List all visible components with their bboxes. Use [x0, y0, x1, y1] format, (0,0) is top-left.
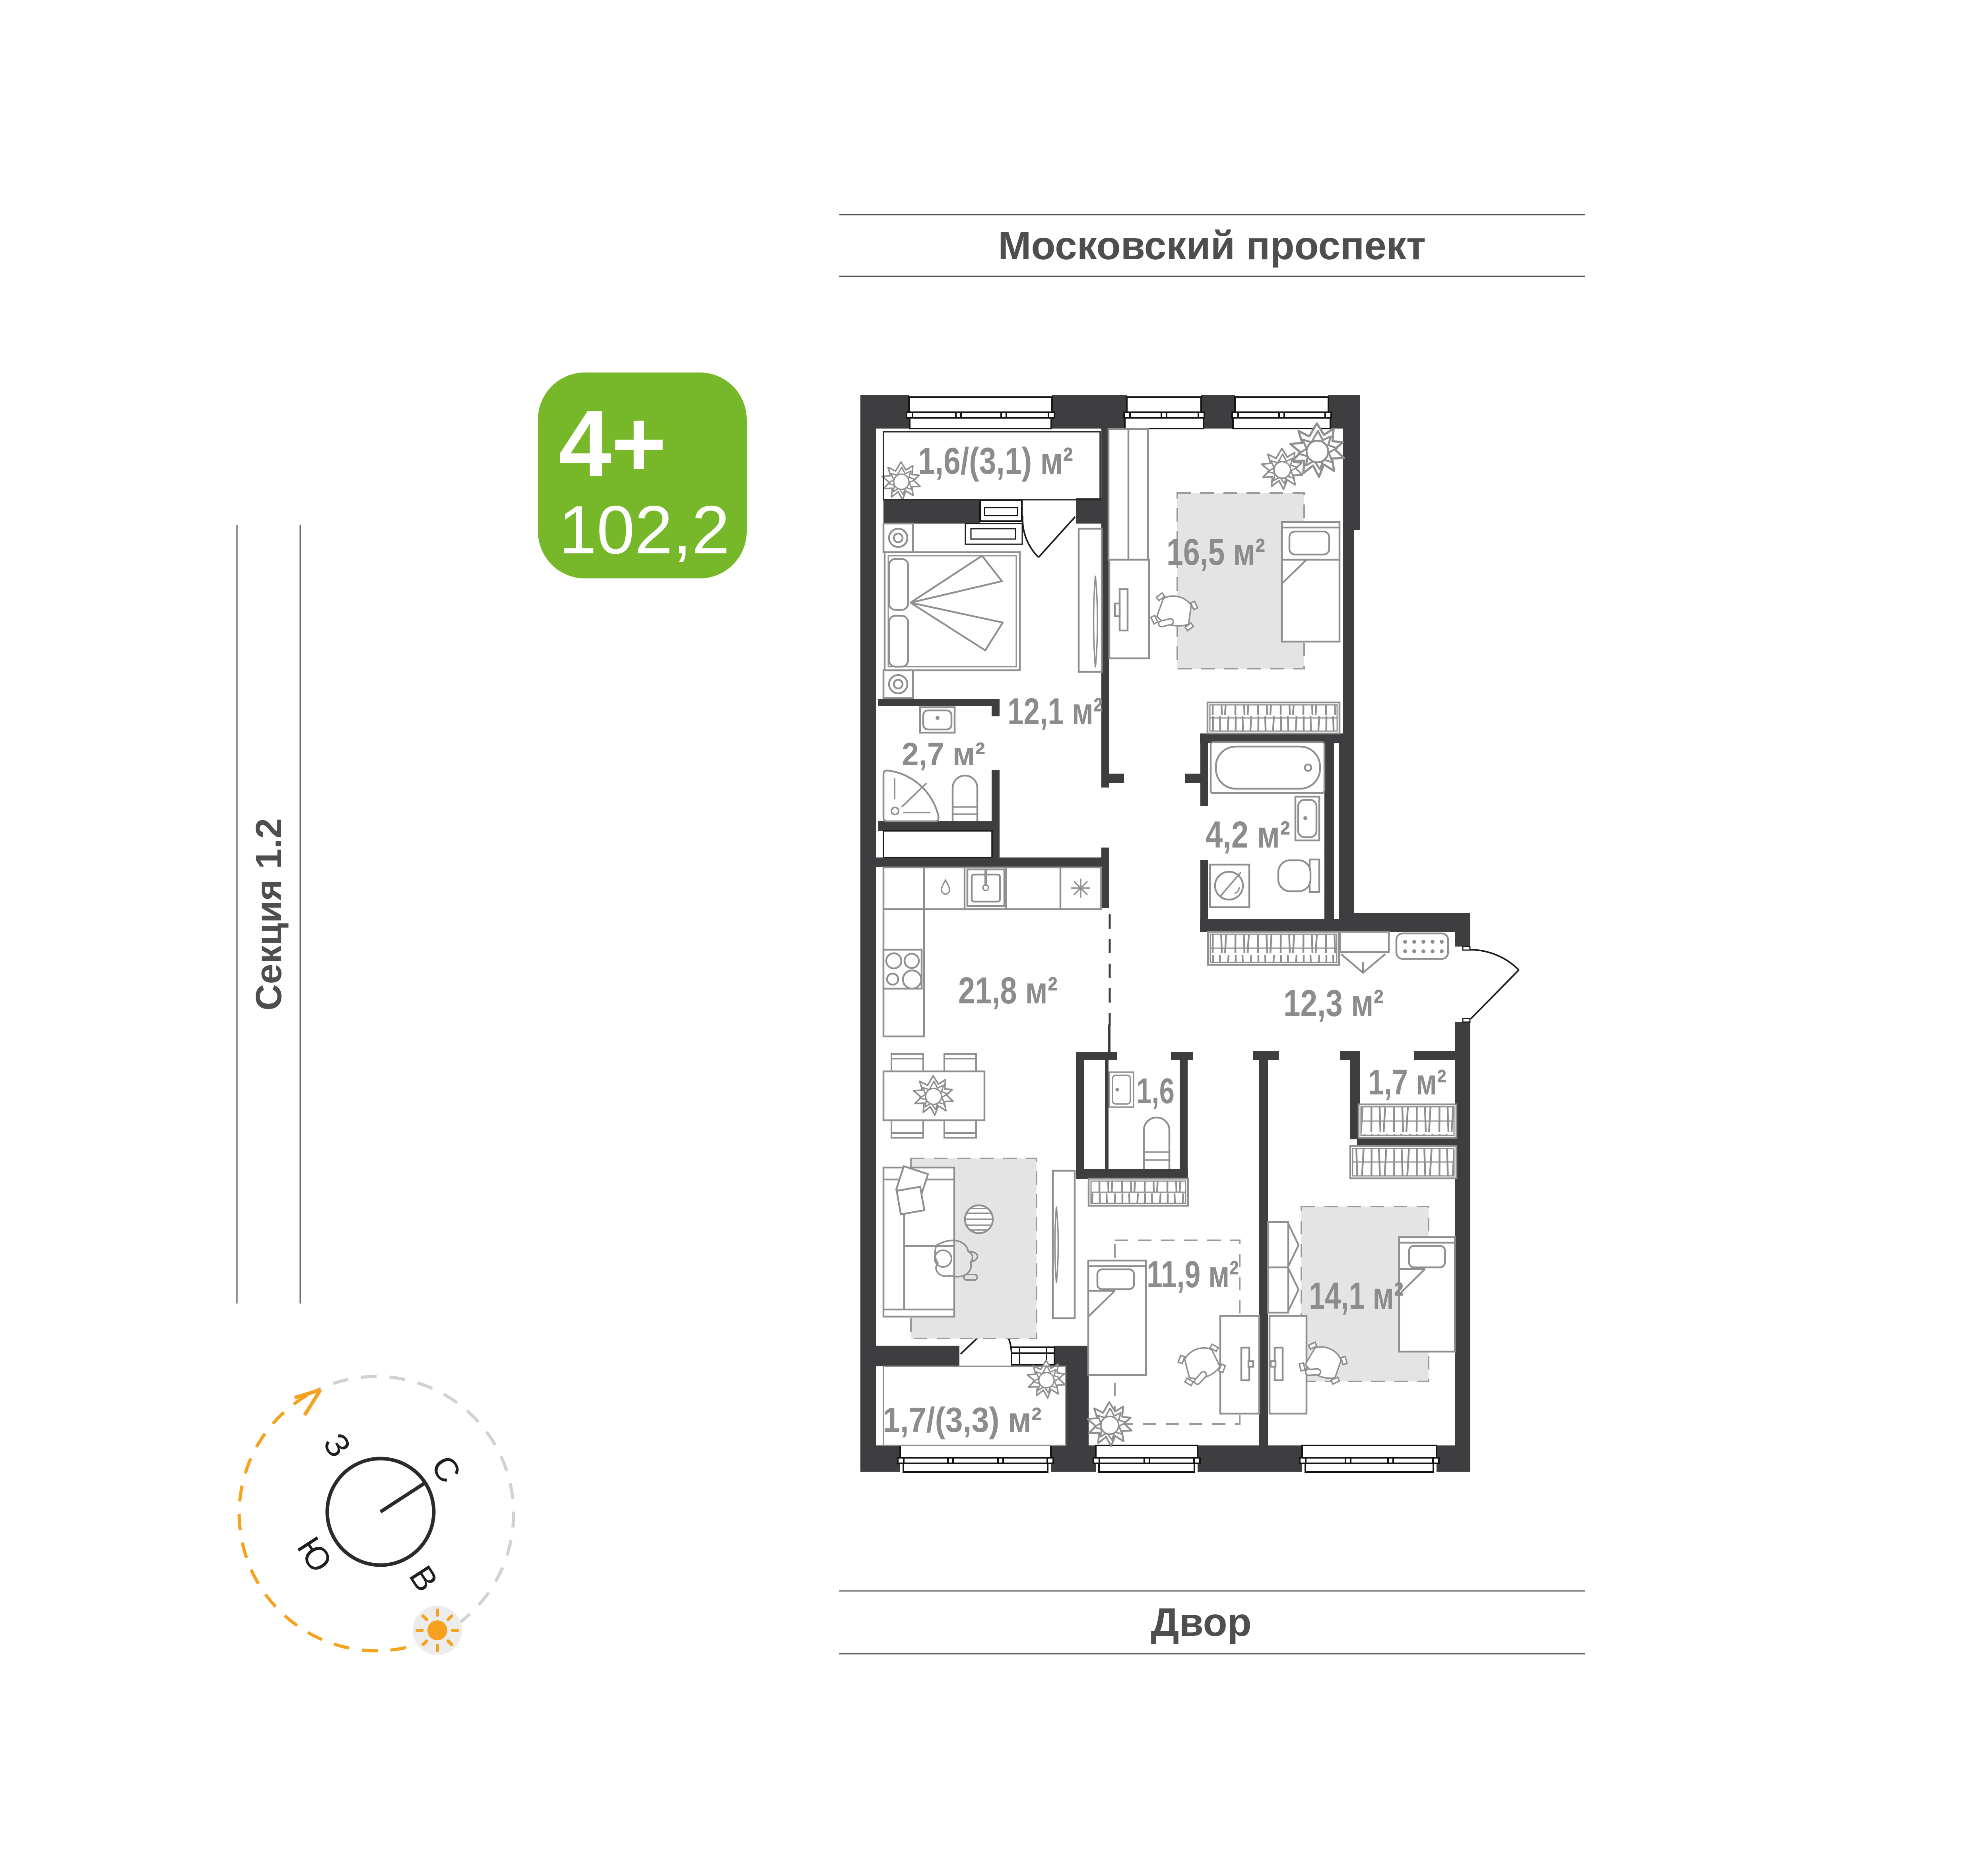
- svg-text:1,6/(3,1) м²: 1,6/(3,1) м²: [918, 440, 1073, 482]
- svg-text:1,6: 1,6: [1136, 1071, 1175, 1111]
- svg-text:4+: 4+: [559, 391, 666, 497]
- svg-text:Двор: Двор: [1151, 1600, 1252, 1645]
- svg-text:11,9 м²: 11,9 м²: [1147, 1253, 1239, 1296]
- svg-text:21,8 м²: 21,8 м²: [958, 970, 1058, 1012]
- svg-text:4,2 м²: 4,2 м²: [1206, 814, 1290, 856]
- svg-text:102,2: 102,2: [559, 492, 730, 568]
- svg-text:12,1 м²: 12,1 м²: [1008, 691, 1103, 733]
- svg-text:12,3 м²: 12,3 м²: [1283, 982, 1384, 1024]
- svg-text:1,7/(3,3) м²: 1,7/(3,3) м²: [883, 1400, 1042, 1439]
- svg-text:1,7 м²: 1,7 м²: [1368, 1063, 1446, 1102]
- svg-text:16,5 м²: 16,5 м²: [1167, 531, 1265, 573]
- svg-text:Секция 1.2: Секция 1.2: [248, 818, 289, 1011]
- svg-text:14,1 м²: 14,1 м²: [1309, 1275, 1404, 1317]
- svg-text:Московский проспект: Московский проспект: [998, 223, 1426, 268]
- svg-text:2,7 м²: 2,7 м²: [902, 736, 985, 772]
